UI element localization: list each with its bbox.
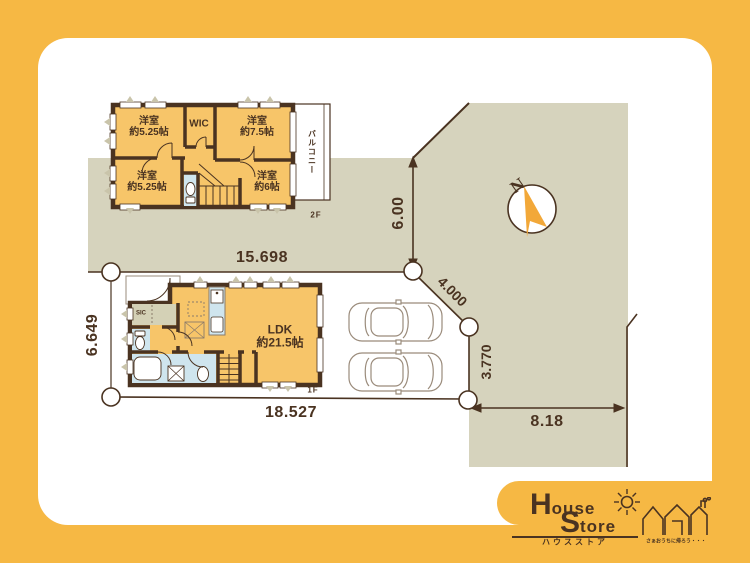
room-size: 約5.25帖 <box>129 127 168 138</box>
room-label-sic: SIC <box>136 311 146 318</box>
dimension-west: 6.649 <box>84 314 102 357</box>
dimension-east-upper: 6.00 <box>390 196 408 229</box>
room-name: 洋室 <box>137 171 157 182</box>
room-size: 約7.5帖 <box>240 127 274 138</box>
dimension-road: 8.18 <box>530 413 563 431</box>
room-name: WIC <box>189 118 208 129</box>
sun-icon <box>613 488 641 516</box>
room-size: 約5.25帖 <box>127 182 166 193</box>
site-plan-drawing <box>0 0 750 563</box>
floorplan-flyer: 15.698 6.00 4.000 3.770 6.649 18.527 8.1… <box>0 0 750 563</box>
dimension-north-width: 15.698 <box>236 249 288 267</box>
houses-icon <box>641 497 713 537</box>
room-size: 約6帖 <box>254 182 280 193</box>
logo-katakana: ハウスストア <box>542 537 608 548</box>
logo-house-initial: H <box>530 488 552 521</box>
room-name: 洋室 <box>257 171 277 182</box>
room-label-2f-tr: 洋室 約7.5帖 <box>240 116 274 138</box>
logo-tagline: さぁおうちに帰ろう・・・ <box>646 538 706 545</box>
logo-store: Store <box>560 508 616 538</box>
room-label-2f-br: 洋室 約6帖 <box>254 171 280 193</box>
balcony-label: バルコニー <box>307 130 318 175</box>
floor-tag-2f: 2F <box>310 212 321 221</box>
room-name: 洋室 <box>247 116 267 127</box>
room-label-ldk: LDK 約21.5帖 <box>256 324 303 351</box>
room-name: LDK <box>268 323 293 337</box>
car-top-view <box>349 300 442 394</box>
floor-tag-1f: 1F <box>307 387 318 396</box>
toilet-icon-2f <box>186 183 195 204</box>
dimension-east-lower: 3.770 <box>479 344 495 379</box>
room-label-2f-bl: 洋室 約5.25帖 <box>127 171 166 193</box>
room-label-2f-wic: WIC <box>189 118 208 129</box>
room-name: 洋室 <box>139 116 159 127</box>
logo-store-initial: S <box>560 506 580 539</box>
room-size: 約21.5帖 <box>256 336 303 350</box>
dimension-south-width: 18.527 <box>265 404 317 422</box>
floor-plan-2f <box>104 96 330 214</box>
logo-store-rest: tore <box>580 517 616 536</box>
room-label-2f-tl: 洋室 約5.25帖 <box>129 116 168 138</box>
